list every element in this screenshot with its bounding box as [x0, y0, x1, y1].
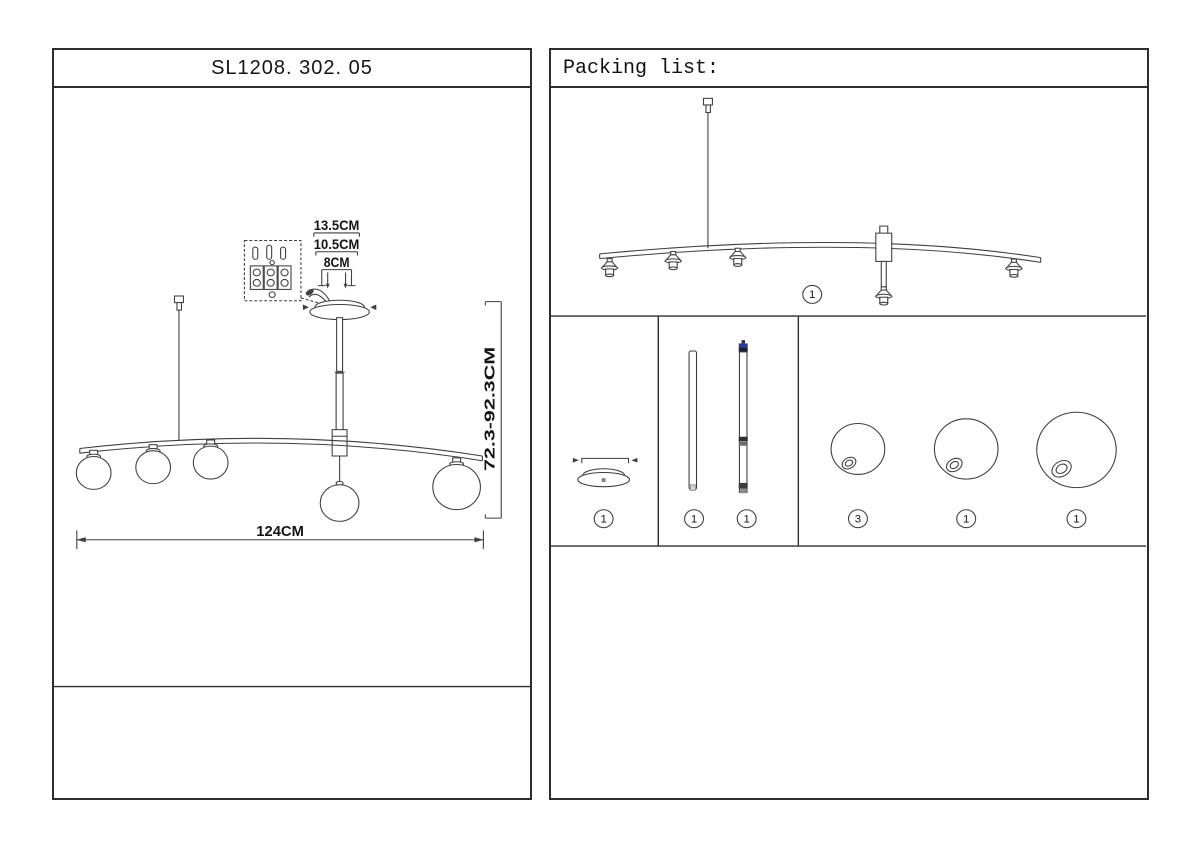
suspension-wire	[174, 296, 183, 440]
canopy-dimensions: 13.5CM 10.5CM 8CM	[314, 217, 360, 288]
central-rod	[335, 318, 345, 431]
item-plain-rod: 1	[685, 351, 704, 528]
svg-text:1: 1	[963, 514, 969, 526]
svg-text:1: 1	[691, 514, 697, 526]
svg-text:1: 1	[744, 514, 750, 526]
canopy-screw-arrow-left	[303, 304, 309, 310]
assembly-junction-block	[876, 233, 892, 261]
assembly-drop-rod	[881, 261, 886, 286]
junction-block	[332, 430, 347, 456]
item-ceiling-canopy: 1	[573, 458, 638, 528]
canopy-screw-arrow-right	[370, 304, 376, 310]
svg-text:1: 1	[600, 514, 606, 526]
packing-list-title-box: Packing list:	[551, 50, 1147, 88]
qty-badge-canopy: 1	[594, 510, 613, 528]
packing-list-panel: Packing list:	[549, 48, 1149, 800]
item-large-globe: 1	[1037, 412, 1116, 527]
ceiling-canopy	[303, 300, 376, 319]
dim-8cm: 8CM	[324, 254, 350, 270]
packing-list-area: 1 1 1	[551, 88, 1147, 760]
qty-badge-medium-globe: 1	[957, 510, 976, 528]
small-globe-1	[76, 450, 111, 489]
packing-list-drawing: 1 1 1	[551, 88, 1147, 760]
dim-drop-height: 72.3-92.3CM	[481, 347, 497, 471]
packing-list-title: Packing list:	[563, 57, 719, 80]
qty-badge-plain-rod: 1	[685, 510, 704, 528]
small-globe-2	[136, 445, 171, 484]
mounting-screws	[328, 272, 346, 284]
dim-10-5cm: 10.5CM	[314, 236, 360, 252]
qty-badge-assembly: 1	[803, 285, 822, 303]
fixture-drawing-area: 13.5CM 10.5CM 8CM	[54, 88, 530, 760]
model-number-title-box: SL1208. 302. 05	[54, 50, 530, 88]
svg-text:1: 1	[1073, 514, 1079, 526]
item-lamp-bar-assembly: 1	[600, 98, 1041, 305]
small-globe-3	[193, 440, 228, 479]
qty-badge-connector-rod: 1	[737, 510, 756, 528]
right-large-globe	[433, 458, 481, 510]
item-connector-rod: 1	[737, 340, 756, 528]
mounting-bracket-profile	[318, 273, 356, 285]
dim-fixture-width: 124CM	[256, 523, 304, 540]
height-dimension: 72.3-92.3CM	[481, 302, 501, 518]
spec-sheet-panel: SL1208. 302. 05	[52, 48, 532, 800]
model-number: SL1208. 302. 05	[211, 57, 373, 80]
dim-13-5cm: 13.5CM	[314, 217, 360, 233]
qty-badge-large-globe: 1	[1067, 510, 1086, 528]
center-drop-globe	[320, 456, 359, 521]
item-small-globe: 3	[831, 424, 885, 528]
qty-badge-small-globe: 3	[849, 510, 868, 528]
item-medium-globe: 1	[934, 419, 998, 528]
width-dimension: 124CM	[77, 523, 484, 549]
fixture-drawing: 13.5CM 10.5CM 8CM	[54, 88, 530, 760]
svg-text:3: 3	[855, 514, 861, 526]
assembly-cap	[880, 226, 888, 234]
svg-text:1: 1	[809, 289, 815, 301]
